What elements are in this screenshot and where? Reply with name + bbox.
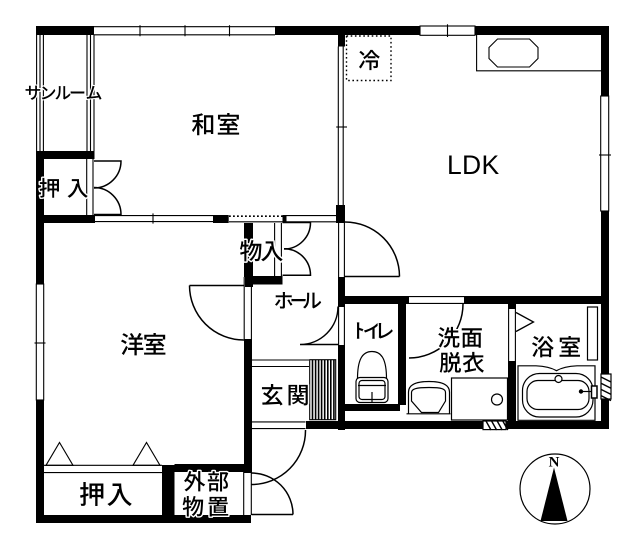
svg-text:N: N — [549, 455, 560, 471]
svg-text:LDK: LDK — [447, 150, 499, 180]
